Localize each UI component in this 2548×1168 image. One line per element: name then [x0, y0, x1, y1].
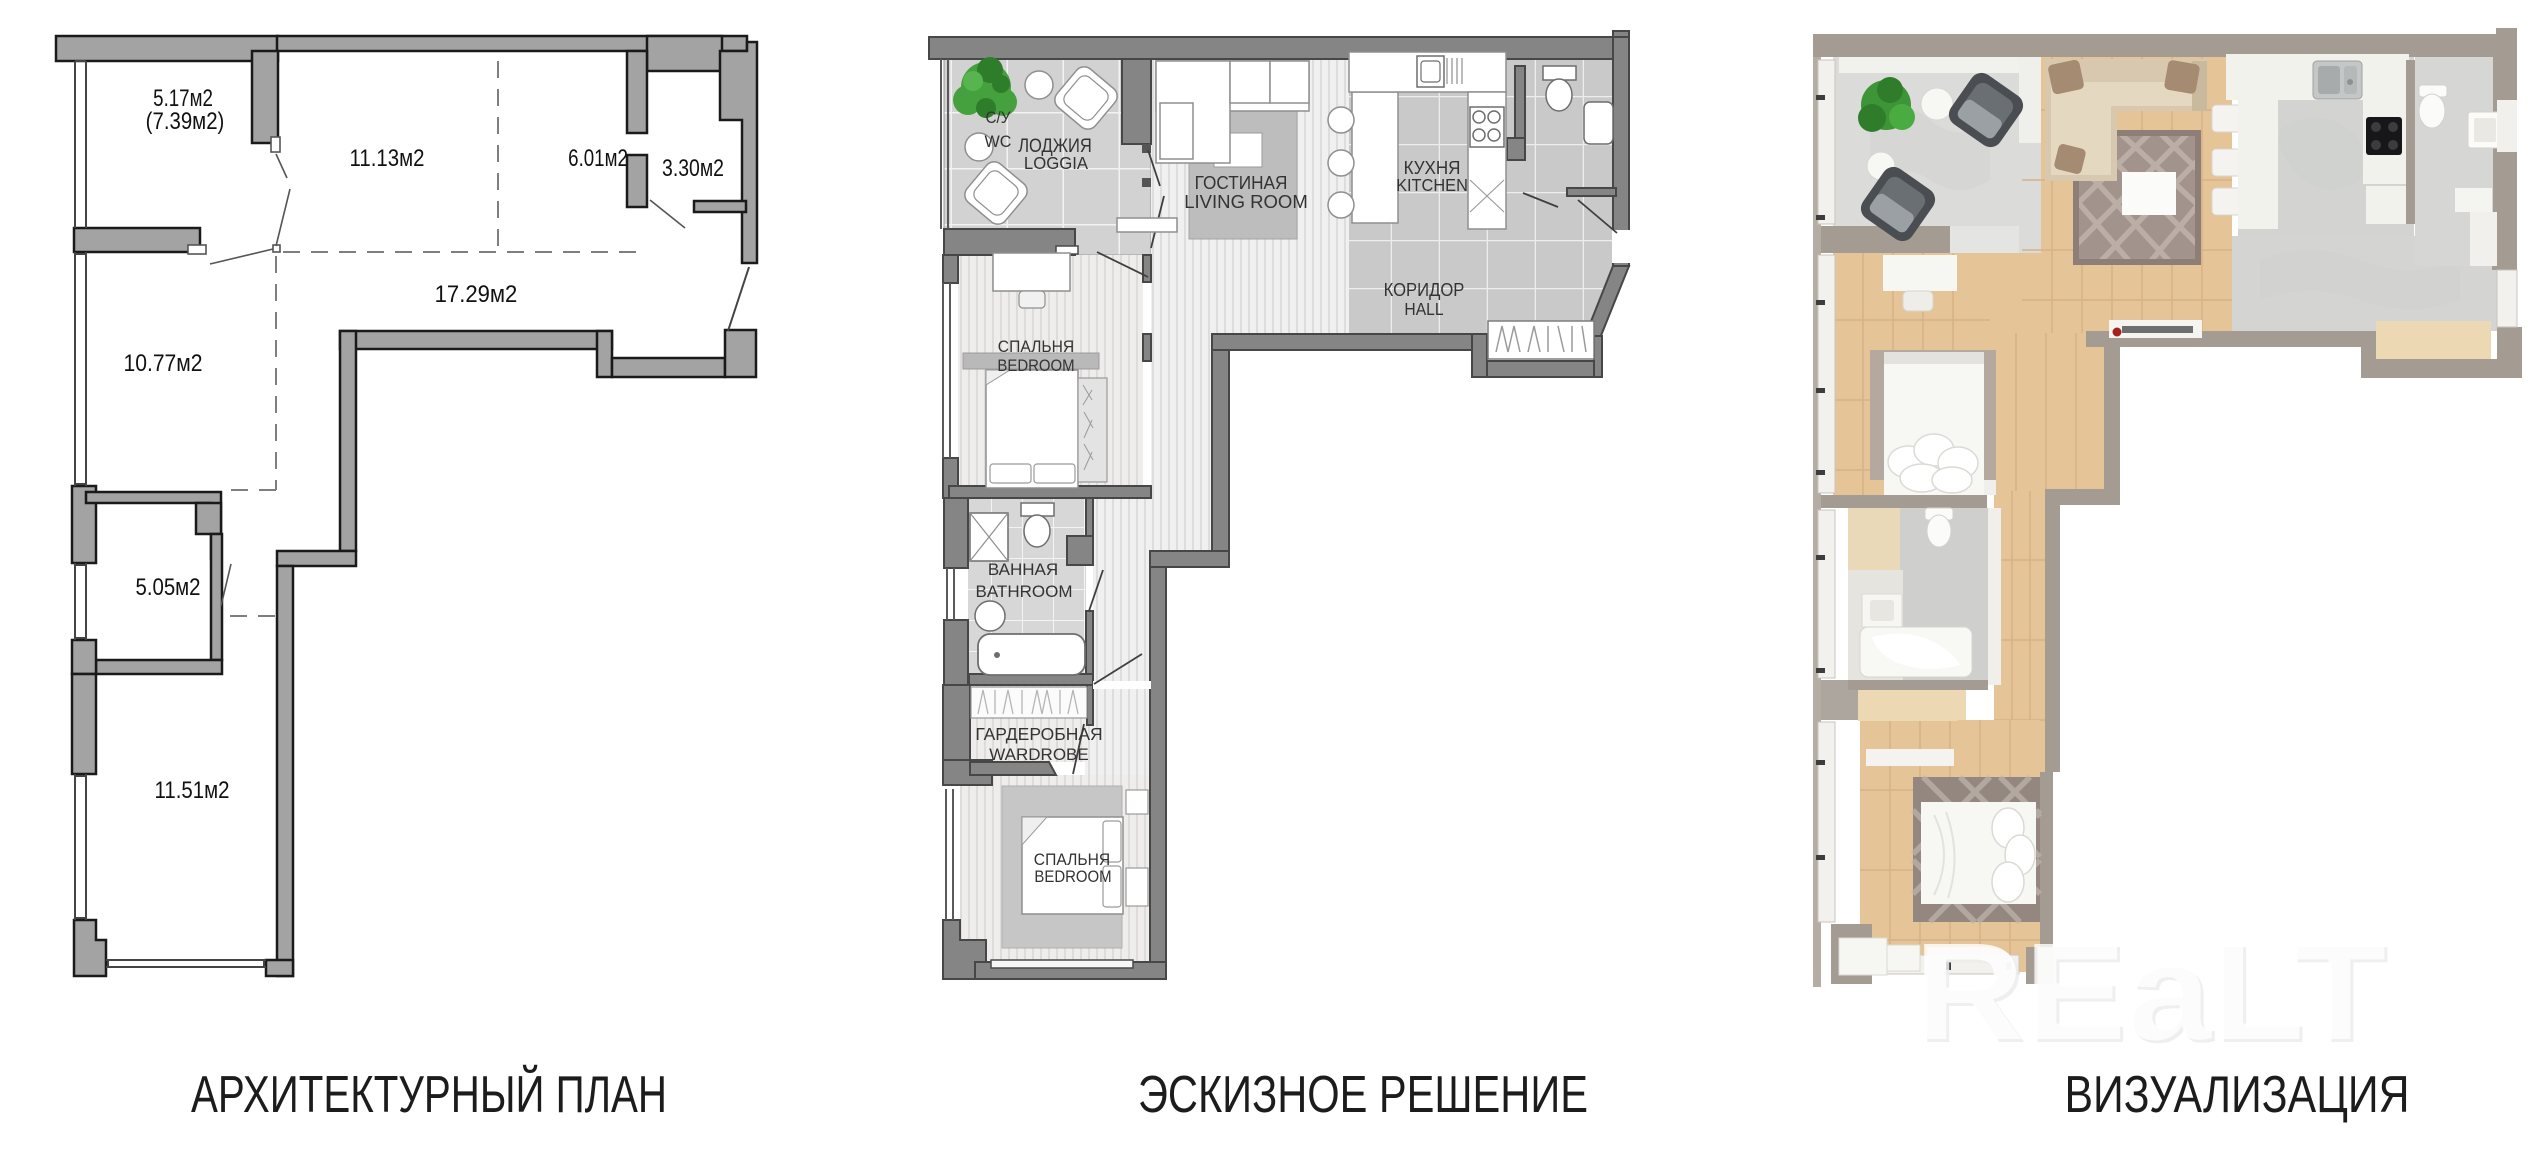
svg-text:11.51м2: 11.51м2 [155, 776, 230, 803]
svg-text:REaLT: REaLT [1914, 915, 2386, 1069]
svg-text:ВИЗУАЛИЗАЦИЯ: ВИЗУАЛИЗАЦИЯ [2065, 1066, 2410, 1124]
svg-text:HALL: HALL [1404, 299, 1443, 319]
svg-text:ВАННАЯ: ВАННАЯ [988, 560, 1058, 579]
svg-text:3.30м2: 3.30м2 [662, 154, 724, 181]
svg-text:ГАРДЕРОБНАЯ: ГАРДЕРОБНАЯ [975, 724, 1102, 744]
svg-text:WC: WC [985, 132, 1012, 151]
svg-text:6.01м2: 6.01м2 [568, 145, 628, 172]
svg-text:BEDROOM: BEDROOM [997, 357, 1074, 375]
svg-text:17.29м2: 17.29м2 [435, 280, 518, 307]
svg-text:10.77м2: 10.77м2 [123, 350, 202, 377]
svg-text:КОРИДОР: КОРИДОР [1384, 279, 1465, 300]
svg-text:LOGGIA: LOGGIA [1024, 152, 1089, 173]
svg-text:(7.39м2): (7.39м2) [146, 107, 225, 134]
svg-text:BATHROOM: BATHROOM [976, 582, 1073, 601]
svg-text:WARDROBE: WARDROBE [989, 745, 1089, 764]
svg-text:СПАЛЬНЯ: СПАЛЬНЯ [1034, 850, 1110, 869]
svg-text:LIVING ROOM: LIVING ROOM [1184, 191, 1308, 212]
svg-text:АРХИТЕКТУРНЫЙ ПЛАН: АРХИТЕКТУРНЫЙ ПЛАН [191, 1065, 667, 1124]
svg-text:СПАЛЬНЯ: СПАЛЬНЯ [998, 337, 1074, 356]
svg-text:BEDROOM: BEDROOM [1034, 868, 1111, 886]
svg-text:С/У: С/У [986, 108, 1012, 127]
svg-text:5.05м2: 5.05м2 [135, 573, 200, 600]
svg-text:KITCHEN: KITCHEN [1396, 174, 1468, 195]
svg-text:11.13м2: 11.13м2 [350, 144, 425, 171]
svg-text:ГОСТИНАЯ: ГОСТИНАЯ [1195, 172, 1288, 193]
svg-text:ЭСКИЗНОЕ РЕШЕНИЕ: ЭСКИЗНОЕ РЕШЕНИЕ [1138, 1066, 1588, 1124]
